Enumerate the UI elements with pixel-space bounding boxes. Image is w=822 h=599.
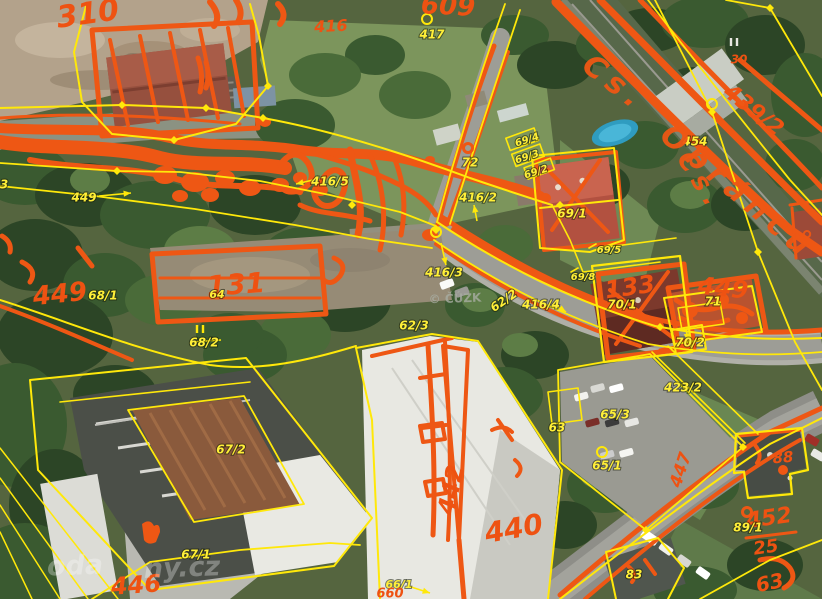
- map-label-89-1: 89/1: [733, 521, 762, 535]
- map-label-65-3: 65/3: [600, 408, 629, 422]
- map-label-449: 449: [30, 277, 88, 313]
- map-label-ny-cz: ny.cz: [143, 551, 221, 585]
- map-label-68-1: 68/1: [88, 289, 117, 303]
- map-label-83: 83: [626, 568, 643, 582]
- cadastral-map-canvas[interactable]: 31060941641730439/245469/469/369/272416/…: [0, 0, 822, 599]
- map-label-416-4: 416/4: [521, 298, 560, 312]
- map-label-64: 64: [209, 288, 224, 301]
- map-label-25: 25: [752, 535, 780, 559]
- map-label-417: 417: [418, 28, 445, 42]
- map-label-449: 449: [70, 191, 96, 205]
- map-label-67-2: 67/2: [216, 443, 245, 457]
- map-label-70-2: 70/2: [675, 336, 704, 350]
- map-label-oda: oda: [46, 550, 103, 583]
- map-label-65-1: 65/1: [592, 459, 621, 473]
- map-label-660: 660: [376, 587, 403, 599]
- map-label-63: 63: [549, 421, 566, 435]
- map-label-68-2: 68/2: [189, 336, 218, 350]
- cadastral-map-viewport[interactable]: 31060941641730439/245469/469/369/272416/…: [0, 0, 822, 599]
- map-label-88: 88: [772, 448, 794, 468]
- map-label-69-8: 69/8: [571, 272, 596, 283]
- map-label-423-2: 423/2: [663, 381, 702, 395]
- map-label-71: 71: [705, 295, 722, 309]
- map-label-416-3: 416/3: [424, 266, 463, 280]
- map-label-3: 3: [0, 178, 8, 192]
- map-label--zk: © ČÚZK: [428, 290, 482, 307]
- map-label-609: 609: [420, 0, 476, 23]
- map-label-30: 30: [731, 53, 748, 67]
- map-label-62-3: 62/3: [399, 319, 428, 333]
- map-label-69-5: 69/5: [597, 245, 622, 256]
- map-label-416-2: 416/2: [458, 191, 497, 205]
- map-label-416-5: 416/5: [310, 175, 349, 189]
- map-label-416: 416: [313, 16, 348, 37]
- map-label-70-1: 70/1: [607, 298, 636, 312]
- map-label-69-1: 69/1: [557, 207, 586, 221]
- map-label-72: 72: [462, 156, 479, 170]
